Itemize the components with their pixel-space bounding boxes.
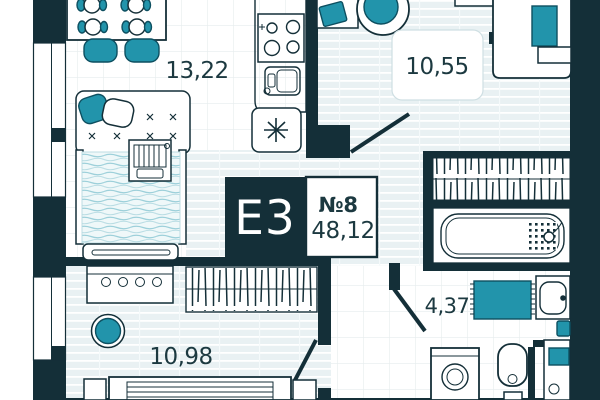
wall-segment bbox=[33, 197, 66, 277]
window-icon bbox=[34, 43, 67, 197]
double-bed bbox=[489, 0, 571, 78]
floor-plan-svg: 13,22 10,55 bbox=[0, 0, 600, 400]
chair-icon bbox=[125, 39, 159, 62]
towel-icon bbox=[549, 348, 569, 365]
drain-icon bbox=[544, 232, 554, 242]
bathroom-area-label: 4,37 bbox=[425, 294, 470, 318]
wall-segment bbox=[33, 0, 66, 43]
hall-wardrobe bbox=[433, 158, 570, 200]
bedroom-area-label: 10,55 bbox=[405, 54, 468, 80]
nightstand bbox=[84, 379, 106, 400]
wall-stub bbox=[389, 263, 400, 290]
laptop-desk bbox=[129, 140, 171, 181]
floor-plan: 13,22 10,55 bbox=[0, 0, 600, 400]
bathtub-icon bbox=[433, 208, 570, 263]
wall-segment bbox=[33, 360, 66, 400]
wall-segment bbox=[423, 263, 570, 271]
unit-number-label: №8 bbox=[319, 193, 358, 217]
living-area-label: 13,22 bbox=[165, 58, 228, 84]
wardrobe bbox=[186, 267, 317, 312]
plate-icon bbox=[122, 19, 152, 35]
wall-segment bbox=[423, 151, 570, 158]
wall-segment bbox=[423, 200, 570, 208]
bath-mat bbox=[470, 281, 535, 319]
plate-icon bbox=[78, 19, 108, 35]
dresser bbox=[87, 266, 173, 303]
blanket bbox=[532, 6, 557, 46]
bench bbox=[83, 244, 178, 260]
wall-segment bbox=[528, 347, 535, 400]
shelf-cut bbox=[455, 0, 495, 6]
stool-icon bbox=[92, 315, 125, 348]
nightstand bbox=[538, 47, 571, 63]
towel-icon bbox=[557, 321, 570, 336]
right-wall bbox=[570, 0, 600, 400]
wall-segment bbox=[306, 125, 350, 158]
bed bbox=[84, 377, 316, 400]
washbasin-icon bbox=[536, 276, 570, 319]
wall-segment bbox=[306, 0, 318, 130]
washing-machine-icon bbox=[431, 348, 479, 400]
stove-icon bbox=[258, 14, 304, 62]
window-icon bbox=[34, 277, 67, 360]
plate-icon bbox=[121, 0, 151, 13]
unit-total-area-label: 48,12 bbox=[311, 218, 374, 244]
plate-icon bbox=[77, 0, 107, 13]
fridge-snowflake-icon bbox=[252, 108, 301, 152]
cabinet bbox=[544, 340, 570, 400]
bedroom2-area-label: 10,98 bbox=[149, 344, 212, 370]
wall-segment bbox=[423, 151, 433, 271]
unit-code-label: E3 bbox=[234, 191, 296, 246]
unit-info-box bbox=[306, 177, 377, 257]
unit-label-box: E3 №8 48,12 bbox=[225, 177, 377, 257]
chair-icon bbox=[84, 39, 117, 62]
wall-segment bbox=[318, 257, 331, 345]
nightstand bbox=[293, 380, 316, 400]
